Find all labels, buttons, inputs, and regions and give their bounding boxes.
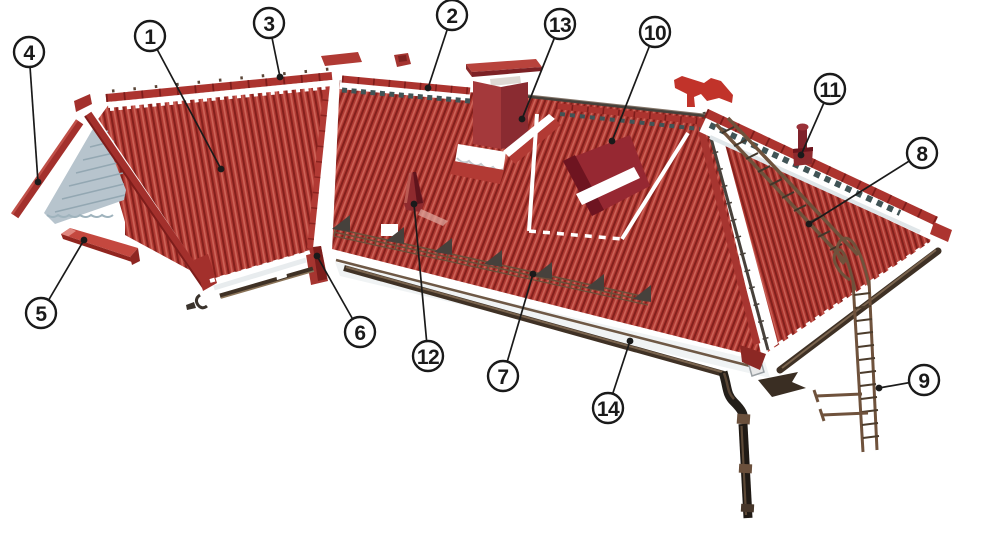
svg-text:14: 14	[597, 398, 620, 421]
svg-text:10: 10	[644, 22, 666, 45]
svg-text:13: 13	[549, 14, 571, 37]
svg-text:11: 11	[819, 79, 841, 102]
svg-text:12: 12	[417, 346, 439, 369]
svg-text:3: 3	[263, 13, 274, 36]
svg-text:9: 9	[918, 370, 929, 393]
svg-text:4: 4	[23, 42, 35, 65]
svg-text:5: 5	[35, 303, 47, 326]
svg-text:1: 1	[144, 26, 156, 49]
svg-text:2: 2	[446, 5, 457, 28]
svg-text:7: 7	[497, 366, 508, 389]
svg-text:6: 6	[354, 322, 365, 345]
svg-text:8: 8	[916, 143, 928, 166]
